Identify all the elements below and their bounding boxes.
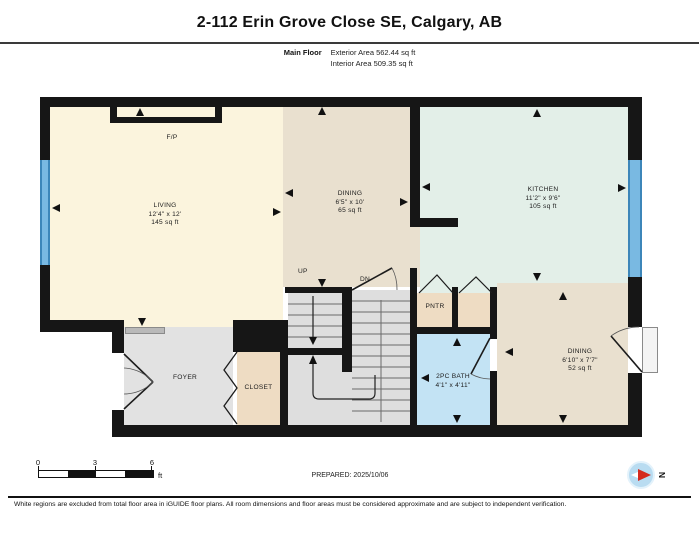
floor-plan: LIVING 12'4" x 12' 145 sq ft DINING 6'5"…: [40, 90, 660, 450]
living-area: 145 sq ft: [115, 219, 215, 228]
wall-kitchen-partial: [410, 97, 420, 227]
compass-icon: [627, 461, 655, 489]
stairs-dn-label: DN: [360, 276, 370, 283]
foyer-label: FOYER: [145, 374, 225, 383]
stairs-right-flight: [352, 290, 410, 425]
kitchen-window: [628, 160, 642, 277]
kitchen-label: KITCHEN 11'2" x 9'6" 105 sq ft: [493, 186, 593, 212]
wall-bath-left: [410, 268, 417, 425]
title-divider: [0, 42, 699, 44]
living-room-label: LIVING 12'4" x 12' 145 sq ft: [115, 202, 215, 228]
wall-kitchen-stub: [417, 218, 458, 227]
dining2-area: 52 sq ft: [530, 365, 630, 374]
footer-divider: [8, 496, 691, 498]
dining-area: 65 sq ft: [300, 207, 400, 216]
stairs-left-flight: [288, 293, 342, 425]
wall-stairs-mid: [342, 287, 352, 372]
pantry2-floor: [458, 293, 490, 327]
wall-bottom: [112, 425, 642, 437]
wall-bath-right-upper: [490, 333, 497, 339]
living-name: LIVING: [115, 202, 215, 211]
fireplace-niche-interior: [117, 107, 215, 117]
wall-stairs-bar: [285, 348, 352, 355]
interior-area: Interior Area 509.35 sq ft: [331, 58, 416, 69]
closet-label: CLOSET: [237, 384, 280, 393]
stairs-up-label: UP: [298, 268, 308, 275]
area-lines: Exterior Area 562.44 sq ft Interior Area…: [331, 47, 416, 69]
prepared-date: PREPARED: 2025/10/06: [250, 472, 450, 479]
page-title: 2-112 Erin Grove Close SE, Calgary, AB: [0, 14, 699, 32]
bath-label: 2PC BATH 4'1" x 4'11": [413, 373, 493, 390]
dining2-name: DINING: [530, 348, 630, 357]
pantry-label: PNTR: [415, 303, 455, 312]
living-window: [40, 160, 50, 265]
scale-segment: [39, 471, 68, 477]
fireplace-label: F/P: [152, 134, 192, 143]
dining2-dims: 6'10" x 7'7": [530, 357, 630, 366]
wall-stairs-top: [285, 287, 342, 293]
wall-closet-block: [233, 320, 288, 352]
compass-needle: [638, 469, 651, 481]
scale-tick-6: 6: [146, 458, 158, 467]
scale-segment: [125, 471, 154, 477]
wall-right-lower: [628, 373, 642, 437]
scale-segment: [68, 471, 97, 477]
stairs-landing: [342, 372, 352, 425]
kitchen-dims: 11'2" x 9'6": [493, 195, 593, 204]
living-dims: 12'4" x 12': [115, 211, 215, 220]
compass-north-label: N: [657, 472, 667, 478]
footer-disclaimer: White regions are excluded from total fl…: [14, 501, 690, 508]
wall-pantry-bottom: [417, 327, 497, 334]
floor-plan-page: 2-112 Erin Grove Close SE, Calgary, AB M…: [0, 0, 699, 540]
floor-summary: Main Floor Exterior Area 562.44 sq ft In…: [0, 47, 699, 69]
dining2-label: DINING 6'10" x 7'7" 52 sq ft: [530, 348, 630, 374]
bath-name: 2PC BATH: [413, 373, 493, 382]
kitchen-area: 105 sq ft: [493, 203, 593, 212]
entry-step: [125, 327, 165, 334]
floor-label: Main Floor: [284, 47, 322, 69]
scale-segment: [96, 471, 125, 477]
wall-closet-right: [280, 352, 288, 425]
dining-name: DINING: [300, 190, 400, 199]
kitchen-name: KITCHEN: [493, 186, 593, 195]
exterior-landing: [642, 327, 658, 373]
dining-dims: 6'5" x 10': [300, 199, 400, 208]
scale-bar-segments: [38, 470, 154, 478]
kitchen-floor-lower: [420, 283, 497, 293]
wall-pantry-right: [490, 287, 497, 327]
scale-unit: ft: [158, 471, 162, 480]
wall-living-bottom: [40, 320, 124, 332]
exterior-area: Exterior Area 562.44 sq ft: [331, 47, 416, 58]
wall-foyer-left-upper: [112, 332, 124, 353]
bath-dims: 4'1" x 4'11": [413, 382, 493, 391]
dining-room-label: DINING 6'5" x 10' 65 sq ft: [300, 190, 400, 216]
